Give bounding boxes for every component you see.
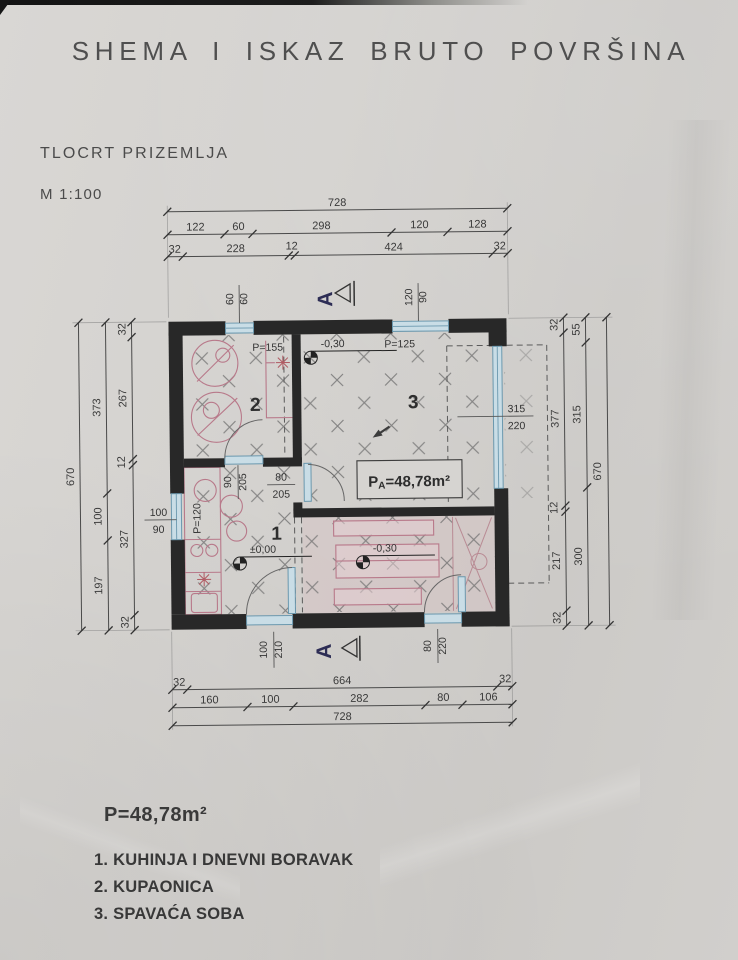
legend-item-bedroom: 3. SPAVAĆA SOBA bbox=[94, 901, 353, 928]
section-marker-top: A bbox=[314, 281, 354, 307]
dim-value: 228 bbox=[226, 243, 244, 255]
dim-value: 664 bbox=[333, 675, 351, 687]
room-legend: 1. KUHINJA I DNEVNI BORAVAK 2. KUPAONICA… bbox=[94, 847, 353, 928]
dim-value: 55 bbox=[570, 323, 582, 335]
bedroom-door-leaf bbox=[304, 463, 311, 501]
legend-item-bathroom: 2. KUPAONICA bbox=[94, 874, 353, 901]
dim-value: 128 bbox=[468, 218, 486, 230]
dim-value: 300 bbox=[573, 547, 585, 565]
dim-value: 327 bbox=[119, 530, 131, 548]
dim-value: 377 bbox=[549, 409, 561, 427]
terrace-door-leaf bbox=[458, 577, 465, 612]
dim-value: 106 bbox=[479, 691, 497, 703]
dim-value: 373 bbox=[91, 398, 103, 416]
dim-value: 60 bbox=[232, 221, 244, 233]
scanned-paper: SHEMA I ISKAZ BRUTO POVRŠINA TLOCRT PRIZ… bbox=[0, 0, 738, 960]
level-bedroom: -0,30 bbox=[321, 338, 345, 350]
dim-value: 90 bbox=[222, 476, 234, 488]
dim-value: 282 bbox=[350, 693, 368, 705]
dim-value: 32 bbox=[493, 240, 505, 252]
section-arrow-icon bbox=[342, 639, 357, 657]
section-marker-bottom: A bbox=[313, 636, 360, 661]
dim-value: 12 bbox=[116, 456, 128, 468]
dim-value: 220 bbox=[437, 637, 449, 655]
dim-value: 217 bbox=[551, 551, 563, 569]
bench bbox=[334, 588, 421, 605]
dim-value: 32 bbox=[548, 319, 560, 331]
dim-value: 100 bbox=[150, 507, 168, 519]
dim-value: 32 bbox=[116, 323, 128, 335]
dim-value: 120 bbox=[403, 288, 415, 306]
total-area-label: P=48,78m² bbox=[104, 804, 207, 827]
dim-value: 32 bbox=[168, 244, 180, 256]
dim-value: 90 bbox=[153, 524, 165, 536]
terrace-door-sill bbox=[425, 614, 462, 623]
dim-value: 60 bbox=[238, 293, 250, 305]
dim-value: 205 bbox=[272, 489, 290, 501]
dim-value: 100 bbox=[258, 641, 270, 659]
kitchen-drain-symbol bbox=[197, 572, 211, 586]
parapet-bathroom: P=155 bbox=[252, 342, 283, 354]
room-number-bedroom: 3 bbox=[408, 392, 419, 413]
dim-value: 60 bbox=[224, 293, 236, 305]
bathroom-door-leaf bbox=[225, 456, 263, 464]
dim-value: 80 bbox=[437, 692, 449, 704]
dim-value: 80 bbox=[422, 640, 434, 652]
parapet-kitchen: P=120 bbox=[191, 503, 203, 534]
dim-value: 205 bbox=[237, 473, 249, 491]
dim-value: 160 bbox=[200, 694, 218, 706]
entrance-door-leaf bbox=[288, 567, 295, 613]
dim-value: 32 bbox=[120, 616, 132, 628]
area-box: PA=48,78m² bbox=[357, 460, 462, 499]
dim-value: 90 bbox=[417, 291, 429, 303]
parapet-bedroom: P=125 bbox=[384, 338, 415, 350]
legend-item-kitchen: 1. KUHINJA I DNEVNI BORAVAK bbox=[94, 847, 353, 874]
dim-value: 220 bbox=[508, 420, 526, 432]
room-number-kitchen: 1 bbox=[271, 524, 282, 545]
floor-drain-symbol bbox=[276, 356, 290, 370]
dim-value: 32 bbox=[173, 677, 185, 689]
dim-value: 80 bbox=[275, 472, 287, 484]
section-label: A bbox=[313, 643, 336, 658]
entrance-door-sill bbox=[247, 616, 293, 625]
dim-value: 670 bbox=[592, 462, 604, 480]
dim-value: 12 bbox=[548, 502, 560, 514]
dim-value: 728 bbox=[333, 711, 351, 723]
level-terrace: -0,30 bbox=[373, 542, 397, 554]
dim-value: 12 bbox=[285, 240, 297, 252]
dim-value: 100 bbox=[92, 507, 104, 525]
dim-value: 100 bbox=[261, 694, 279, 706]
dim-value: 120 bbox=[410, 219, 428, 231]
dim-value: 267 bbox=[117, 389, 129, 407]
dim-value: 315 bbox=[571, 405, 583, 423]
dim-value: 298 bbox=[312, 220, 330, 232]
room-number-bathroom: 2 bbox=[250, 395, 261, 416]
dim-value: 32 bbox=[551, 612, 563, 624]
dim-value: 32 bbox=[499, 673, 511, 685]
dim-value: 122 bbox=[186, 221, 204, 233]
dim-value: 670 bbox=[65, 468, 77, 486]
dim-value: 197 bbox=[93, 576, 105, 594]
dim-value: 315 bbox=[508, 403, 526, 415]
level-main: ±0,00 bbox=[250, 544, 276, 556]
dim-value: 210 bbox=[273, 641, 285, 659]
dim-value: 424 bbox=[384, 241, 402, 253]
section-arrow-icon bbox=[335, 284, 350, 302]
section-label: A bbox=[314, 291, 337, 306]
bench bbox=[334, 520, 434, 536]
dim-value: 728 bbox=[328, 197, 346, 209]
